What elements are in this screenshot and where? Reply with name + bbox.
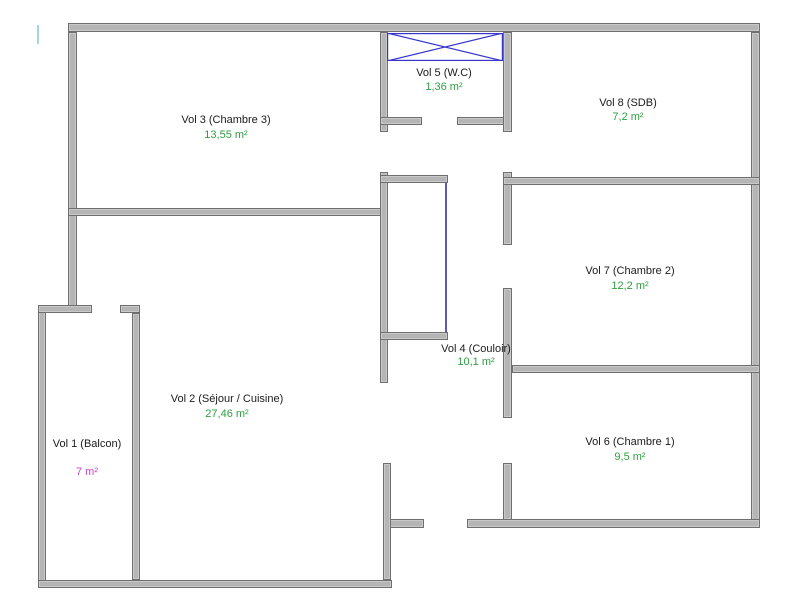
wall-outer-right	[751, 32, 760, 528]
room-label-vol-1: Vol 1 (Balcon) 7 m²	[53, 438, 121, 479]
room-name-vol-8: Vol 8 (SDB)	[599, 97, 656, 110]
room-name-vol-7: Vol 7 (Chambre 2)	[585, 265, 674, 278]
room-name-vol-1: Vol 1 (Balcon)	[53, 438, 121, 451]
wall-bottom-right-seg-b	[467, 519, 760, 528]
wall-balcony-top-seg-a	[38, 305, 92, 313]
closet-front-line	[445, 183, 447, 332]
room-label-vol-8: Vol 8 (SDB) 7,2 m²	[599, 97, 656, 124]
wall-vol3-bottom	[68, 208, 387, 216]
wall-vol6-vol7-divider	[512, 365, 760, 373]
room-label-vol-3: Vol 3 (Chambre 3) 13,55 m²	[181, 114, 270, 142]
room-label-vol-2: Vol 2 (Séjour / Cuisine) 27,46 m²	[171, 393, 284, 421]
room-area-vol-5: 1,36 m²	[416, 81, 472, 94]
room-area-vol-8: 7,2 m²	[599, 111, 656, 124]
room-area-vol-1: 7 m²	[53, 466, 121, 479]
room-name-vol-4: Vol 4 (Couloir)	[441, 343, 511, 356]
wall-closet-bottom	[380, 332, 448, 340]
wall-vol2-right-lower	[383, 463, 391, 580]
room-area-vol-2: 27,46 m²	[171, 408, 284, 421]
room-area-vol-4: 10,1 m²	[441, 356, 511, 369]
wall-mid-left-seg-b	[380, 172, 388, 383]
wall-closet-top	[380, 175, 448, 183]
room-area-vol-3: 13,55 m²	[181, 129, 270, 142]
left-edge-tick	[37, 25, 39, 44]
floor-plan: Vol 1 (Balcon) 7 m² Vol 2 (Séjour / Cuis…	[0, 0, 811, 608]
room-name-vol-5: Vol 5 (W.C)	[416, 67, 472, 80]
room-label-vol-4: Vol 4 (Couloir) 10,1 m²	[441, 343, 511, 369]
room-area-vol-7: 12,2 m²	[585, 280, 674, 293]
wall-main-bottom	[38, 580, 392, 588]
room-name-vol-6: Vol 6 (Chambre 1)	[585, 436, 674, 449]
room-label-vol-6: Vol 6 (Chambre 1) 9,5 m²	[585, 436, 674, 464]
wall-mid-right-seg-a	[503, 32, 512, 132]
wall-balcony-right	[132, 313, 140, 580]
wall-outer-left-upper	[68, 32, 77, 313]
wall-wc-bottom-seg-a	[380, 117, 422, 125]
room-name-vol-3: Vol 3 (Chambre 3)	[181, 114, 270, 127]
room-label-vol-5: Vol 5 (W.C) 1,36 m²	[416, 67, 472, 94]
wall-outer-top	[68, 23, 760, 32]
room-area-vol-6: 9,5 m²	[585, 451, 674, 464]
wall-balcony-top-seg-b	[120, 305, 140, 313]
room-label-vol-7: Vol 7 (Chambre 2) 12,2 m²	[585, 265, 674, 293]
room-name-vol-2: Vol 2 (Séjour / Cuisine)	[171, 393, 284, 406]
wall-vol8-bottom	[503, 177, 760, 185]
wc-window-x-marker	[387, 33, 503, 61]
wall-mid-right-seg-d	[503, 463, 512, 520]
wall-balcony-left	[38, 305, 46, 588]
